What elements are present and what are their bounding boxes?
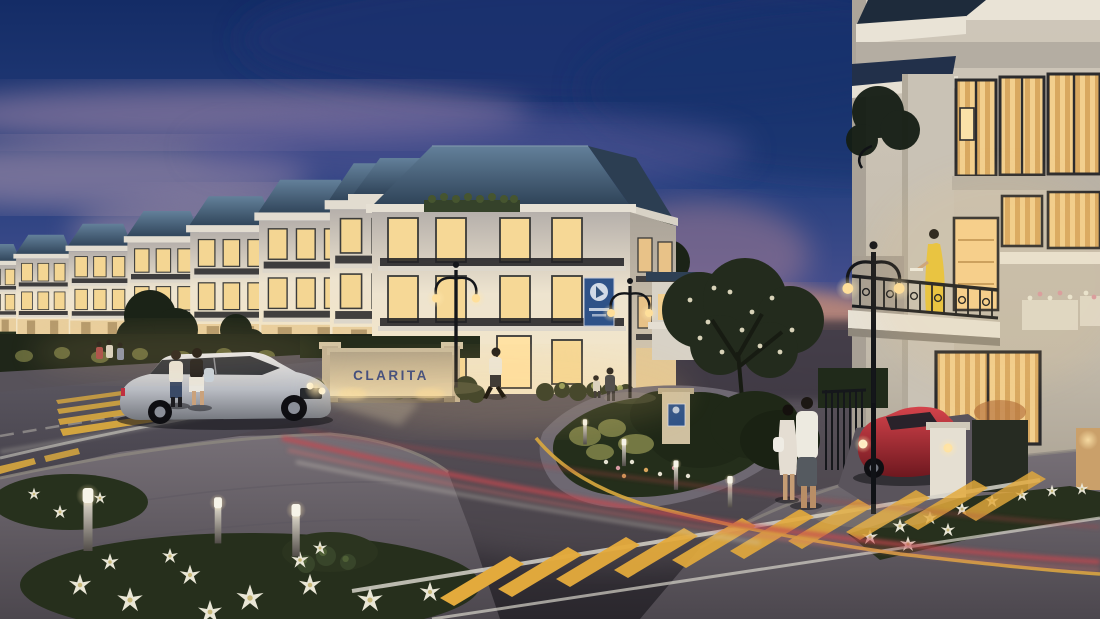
dusk-streetscape-render: CLARITA — [0, 0, 1100, 619]
scene-canvas: CLARITA — [0, 0, 1100, 619]
handbag — [773, 437, 784, 452]
